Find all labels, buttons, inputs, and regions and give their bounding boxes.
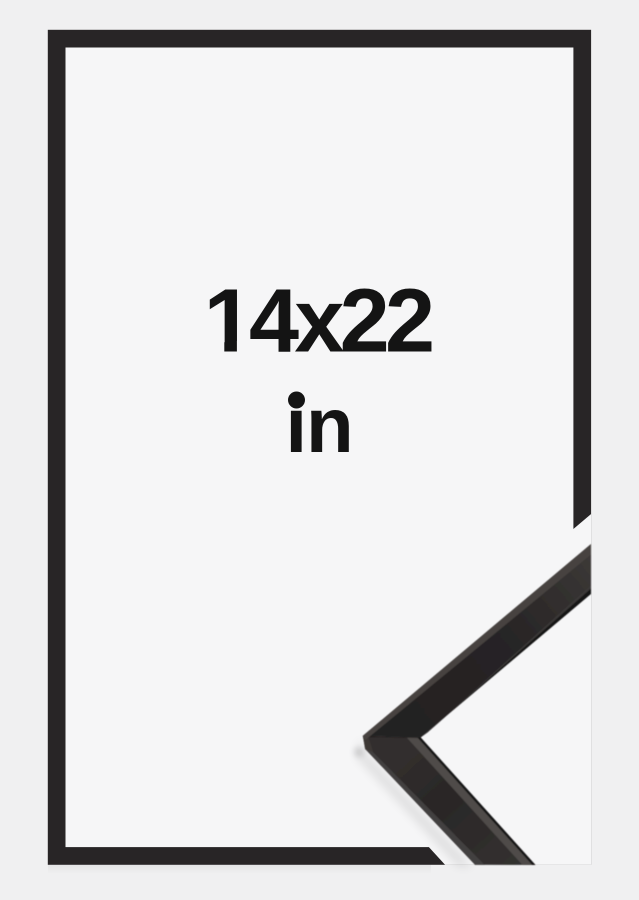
svg-text:14x22: 14x22: [204, 272, 432, 372]
